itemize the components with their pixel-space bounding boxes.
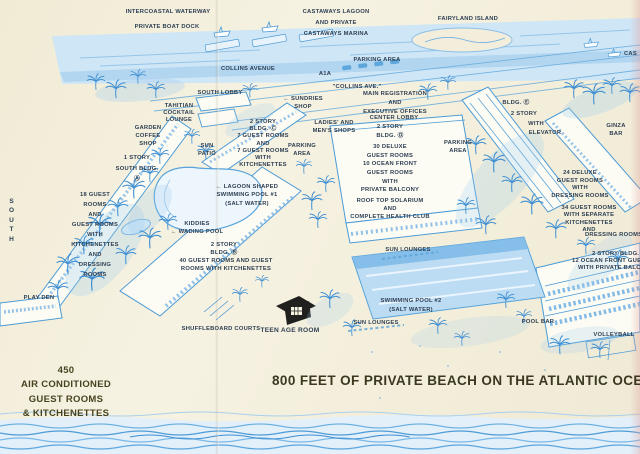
label-dressing-rooms-clipped: DRESSING ROOMS bbox=[585, 232, 640, 240]
label-bldg-e-elevator: ELEVATOR bbox=[529, 130, 562, 138]
label-ginza-bar: GINZA BAR bbox=[606, 123, 625, 138]
label-main-registration: MAIN REGISTRATION AND EXECUTIVE OFFICES bbox=[363, 90, 427, 117]
label-center-lobby: CENTER LOBBY bbox=[370, 115, 419, 123]
label-south-bldg-a: 1 STORY SOUTH BLDG. Ⓐ bbox=[116, 153, 159, 185]
label-a1a: A1A bbox=[319, 71, 331, 79]
headline-800-feet: 800 FEET OF PRIVATE BEACH ON THE ATLANTI… bbox=[272, 373, 640, 388]
label-parking-area-left: PARKING AREA bbox=[288, 143, 316, 159]
label-teen-age-room: TEEN AGE ROOM bbox=[260, 327, 319, 336]
label-bldg-b-block: 2 STORY BLDG. Ⓑ bbox=[210, 241, 237, 257]
label-bldg-e-with: WITH bbox=[528, 121, 544, 129]
label-ladies-mens-shops: LADIES' AND MEN'S SHOPS bbox=[313, 119, 356, 135]
label-intercoastal-waterway: INTERCOASTAL WATERWAY bbox=[126, 9, 211, 17]
label-swimming-pool-2: SWIMMING POOL #2 (SALT WATER) bbox=[381, 297, 442, 316]
label-sundries-shop: ← SUNDRIES SHOP bbox=[283, 95, 323, 111]
label-private-boat-dock: PRIVATE BOAT DOCK bbox=[135, 24, 200, 32]
label-34-guest-block: 34 GUEST ROOMS WITH SEPARATE KITCHENETTE… bbox=[561, 205, 616, 234]
label-volleyball: VOLLEYBALL bbox=[593, 332, 634, 340]
label-18-guest-block: 18 GUEST ROOMS AND GUEST ROOMS WITH KITC… bbox=[71, 191, 118, 281]
label-kiddies-wading-pool: KIDDIES ← WADING POOL bbox=[171, 220, 224, 236]
label-sun-lounges-upper: SUN LOUNGES bbox=[385, 247, 430, 255]
label-collins-avenue: COLLINS AVENUE bbox=[221, 66, 275, 74]
label-south-vertical: S O U T H bbox=[9, 197, 15, 244]
label-bldg-e-title: BLDG. Ⓔ bbox=[502, 100, 529, 108]
label-bldg-right-private-balcony: WITH PRIVATE BALCONY bbox=[578, 265, 640, 273]
resort-map: INTERCOASTAL WATERWAYPRIVATE BOAT DOCKCA… bbox=[0, 0, 640, 454]
label-shuffleboard-courts: SHUFFLEBOARD COURTS bbox=[182, 326, 261, 334]
label-sun-lounges-lower: SUN LOUNGES bbox=[353, 320, 398, 328]
label-garden-coffee-shop: GARDEN COFFEE SHOP bbox=[135, 125, 162, 149]
label-roof-top-solarium: ROOF TOP SOLARIUM AND COMPLETE HEALTH CL… bbox=[350, 197, 430, 222]
label-bldg-c-block: 2 STORY BLDG. Ⓒ 7 GUEST ROOMS AND 7 GUES… bbox=[237, 119, 289, 169]
label-bldg-e-2-story: 2 STORY bbox=[511, 111, 537, 119]
label-bldg-d-title: BLDG. Ⓓ bbox=[376, 133, 403, 141]
label-parking-area-top: PARKING AREA bbox=[353, 57, 400, 65]
label-fairyland-island: FAIRYLAND ISLAND bbox=[438, 16, 498, 24]
label-play-den: PLAY DEN bbox=[24, 295, 55, 303]
label-pool-bar: POOL BAR bbox=[522, 319, 555, 327]
caption-450-rooms: 450 AIR CONDITIONED GUEST ROOMS & KITCHE… bbox=[21, 364, 111, 421]
label-parking-area-right: PARKING AREA bbox=[444, 140, 472, 156]
label-bldg-d-2-story: 2 STORY bbox=[377, 124, 403, 132]
label-tahitian-cocktail-lounge: TAHITIAN COCKTAIL LOUNGE bbox=[163, 103, 195, 124]
label-bldg-d-deluxe-block: 30 DELUXE GUEST ROOMS 10 OCEAN FRONT GUE… bbox=[361, 143, 419, 195]
label-south-lobby: SOUTH LOBBY bbox=[198, 90, 243, 98]
label-24-deluxe-block: 24 DELUXE GUEST ROOMS WITH DRESSING ROOM… bbox=[551, 170, 608, 200]
label-sun-patio: SUN PATIO bbox=[198, 143, 216, 159]
label-castaways-truncated: CAS bbox=[624, 51, 637, 59]
label-40-guest-block: 40 GUEST ROOMS AND GUEST ROOMS WITH KITC… bbox=[179, 258, 272, 274]
label-lagoon-pool-1: ← LAGOON SHAPED SWIMMING POOL #1 (SALT W… bbox=[216, 183, 278, 208]
label-castaways-lagoon-marina: CASTAWAYS LAGOON AND PRIVATE CASTAWAYS M… bbox=[303, 7, 370, 40]
